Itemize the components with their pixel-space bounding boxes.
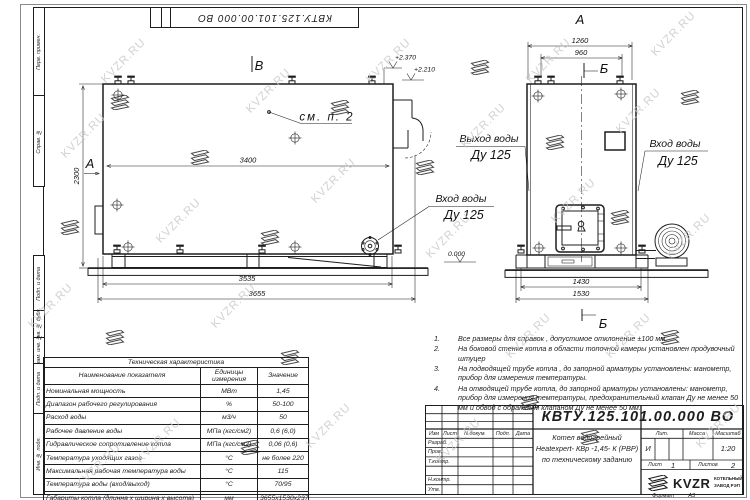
- dim-1530: 1530: [573, 289, 591, 298]
- dim-3655: 3655: [249, 289, 267, 298]
- water-outlet-label: Выход воды: [459, 133, 518, 145]
- target-mark-icon: [532, 90, 545, 103]
- water-inlet-dn: Ду 125: [442, 208, 484, 222]
- target-mark-icon: [289, 132, 302, 145]
- valve-icon: [288, 77, 296, 84]
- dim-3400: 3400: [240, 156, 258, 165]
- dim-1260: 1260: [572, 36, 590, 45]
- target-mark-icon: [122, 241, 135, 254]
- valve-icon: [368, 77, 376, 84]
- water-inlet-label: Вход воды: [436, 193, 487, 205]
- boiler-drawing: 3400 2300 3535 3655 В А см. п. 2: [0, 0, 750, 500]
- elevation-top: +2.370: [395, 55, 416, 62]
- view-marker-a-front: А: [575, 12, 585, 27]
- valve-icon: [616, 77, 624, 84]
- valve-icon: [638, 246, 646, 253]
- dim-3535: 3535: [239, 274, 257, 283]
- water-inlet-dn-front: Ду 125: [656, 154, 698, 168]
- view-marker-b: В: [255, 58, 264, 73]
- target-mark-icon: [289, 241, 302, 254]
- valve-icon: [534, 77, 542, 84]
- valve-icon: [258, 246, 266, 253]
- valve-icon: [394, 246, 402, 253]
- valve-icon: [176, 246, 184, 253]
- see-note-label: см. п. 2: [299, 112, 354, 124]
- valve-icon: [127, 77, 135, 84]
- water-outlet-dn: Ду 125: [469, 148, 511, 162]
- drawing-sheet: КВТУ.125.101.00.000 ВО Перв. примен. Спр…: [0, 0, 750, 500]
- water-inlet-label-front: Вход воды: [650, 138, 701, 150]
- dim-1430: 1430: [573, 277, 591, 286]
- elevation-mid: +2.210: [414, 67, 435, 74]
- target-mark-icon: [615, 88, 628, 101]
- view-marker-a: А: [85, 156, 95, 171]
- valve-icon: [517, 246, 525, 253]
- section-marker-b-top: Б: [600, 61, 609, 76]
- target-mark-icon: [111, 199, 124, 212]
- target-mark-icon: [533, 242, 546, 255]
- side-view: 3400 2300 3535 3655 В А см. п. 2: [72, 55, 494, 304]
- target-mark-icon: [615, 242, 628, 255]
- dim-960: 960: [575, 48, 588, 57]
- valve-icon: [547, 77, 555, 84]
- valve-icon: [114, 77, 122, 84]
- section-marker-b-bottom: Б: [599, 316, 608, 331]
- dim-2300: 2300: [72, 167, 81, 186]
- front-view: 1260 960 А Б Б: [444, 12, 708, 331]
- valve-icon: [113, 246, 121, 253]
- target-mark-icon: [112, 89, 125, 102]
